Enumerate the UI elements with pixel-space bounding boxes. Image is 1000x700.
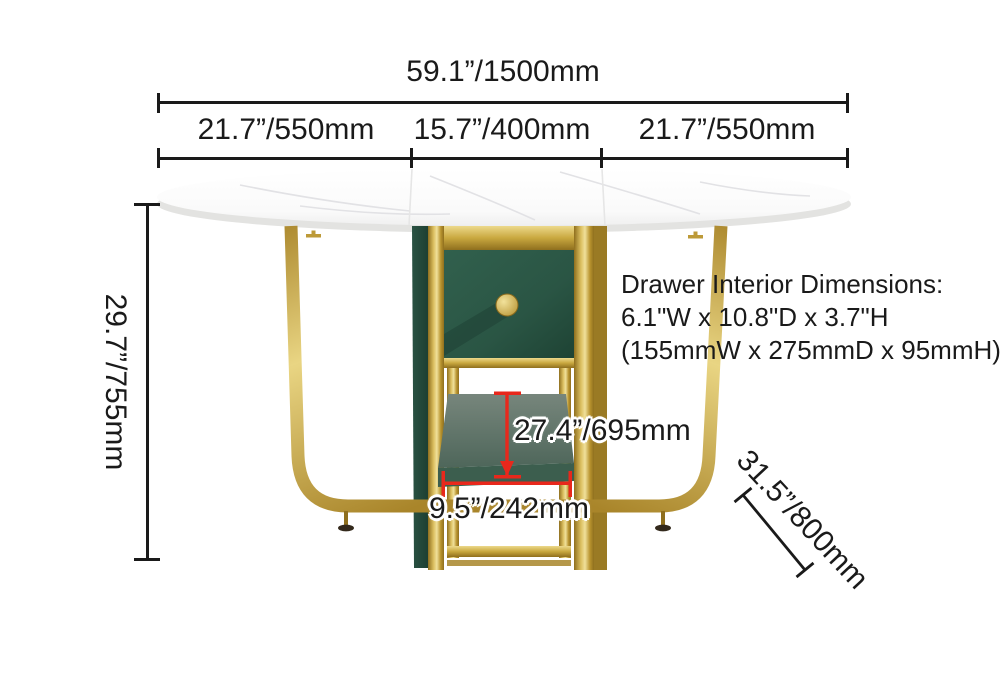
drawer-note-title: Drawer Interior Dimensions: (621, 268, 1000, 301)
drawer-note: Drawer Interior Dimensions: 6.1"W x 10.8… (621, 268, 1000, 367)
dimension-tick (600, 148, 603, 168)
dimension-tick (157, 93, 160, 113)
drawer-knob (496, 294, 518, 316)
dimension-tick (846, 148, 849, 168)
dimension-tick (134, 558, 160, 561)
height-dimension-line (146, 204, 149, 560)
segment-middle-label: 15.7”/400mm (402, 113, 602, 147)
cabinet-top-rail (444, 226, 574, 250)
inner-width-label: 9.5”/242mm (409, 492, 609, 526)
drawer-note-inches: 6.1"W x 10.8"D x 3.7"H (621, 301, 1000, 334)
drawer-bottom-rail (444, 358, 574, 368)
stool-stretcher-lower (447, 560, 571, 566)
clearance-height-label: 27.4”/695mm (514, 414, 691, 448)
dimension-tick (846, 93, 849, 113)
dimension-tick (157, 148, 160, 168)
segment-left-label: 21.7”/550mm (186, 113, 386, 147)
segment-right-label: 21.7”/550mm (627, 113, 827, 147)
stool-stretcher (447, 546, 571, 557)
total-width-label: 59.1”/1500mm (353, 55, 653, 89)
dimension-tick (134, 203, 160, 206)
dimension-diagram: 59.1”/1500mm 21.7”/550mm 15.7”/400mm 21.… (0, 0, 1000, 700)
tabletop-surface (157, 168, 851, 226)
drawer-note-metric: (155mmW x 275mmD x 95mmH) (621, 334, 1000, 367)
segments-dimension-line (158, 157, 848, 160)
total-width-dimension-line (158, 101, 848, 104)
dimension-tick (410, 148, 413, 168)
height-label: 29.7”/755mm (98, 282, 132, 482)
